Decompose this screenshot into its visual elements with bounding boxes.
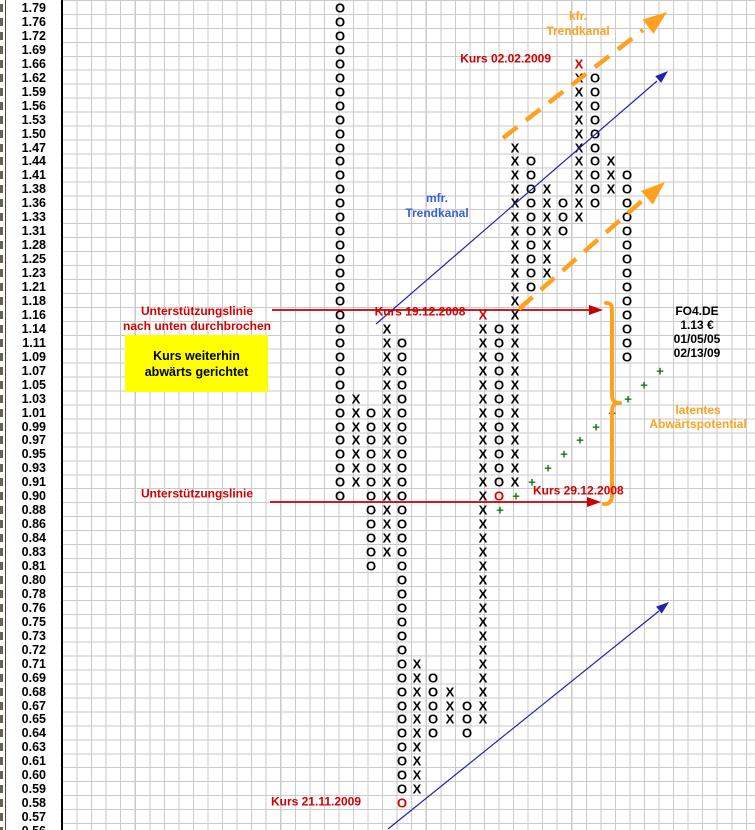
pf-o-marker: O (397, 476, 407, 489)
pf-o-marker: O (366, 434, 376, 447)
pf-x-marker: X (511, 225, 520, 238)
pf-o-marker: O (366, 420, 376, 433)
pf-o-marker: O (462, 699, 472, 712)
latent-plus-marker: + (512, 490, 520, 503)
pf-x-marker: X (383, 406, 392, 419)
pf-x-marker: X (511, 350, 520, 363)
pf-o-marker: O (558, 211, 568, 224)
pf-o-marker: O (590, 127, 600, 140)
pf-x-marker: X (511, 476, 520, 489)
pf-x-marker: X (543, 267, 552, 280)
pf-o-marker: O (397, 560, 407, 573)
pf-o-marker: O (335, 322, 345, 335)
pf-o-marker: O (335, 2, 345, 15)
pf-o-marker: O (526, 155, 536, 168)
annotation-kfr-trendkanal: kfr. Trendkanal (546, 9, 609, 39)
pf-o-marker: O (335, 308, 345, 321)
latent-plus-marker: + (544, 462, 552, 475)
pf-o-marker: O (335, 197, 345, 210)
pf-x-marker: X (607, 169, 616, 182)
pf-o-marker: O (590, 71, 600, 84)
pf-o-marker: O (494, 434, 504, 447)
pf-x-marker: X (479, 350, 488, 363)
pf-x-marker: X (479, 420, 488, 433)
pf-o-marker: O (526, 253, 536, 266)
pf-o-marker: O (494, 350, 504, 363)
pf-x-marker: X (413, 671, 422, 684)
pf-x-marker: X (383, 336, 392, 349)
pf-x-marker: X (413, 657, 422, 670)
pf-x-marker: X (413, 783, 422, 796)
pf-x-marker: X (479, 713, 488, 726)
pf-x-marker: X (511, 364, 520, 377)
pf-x-marker: X (479, 490, 488, 503)
pf-x-marker: X (479, 532, 488, 545)
pf-x-marker: X (383, 448, 392, 461)
support-broken-line1: Unterstützungslinie (123, 304, 271, 319)
pf-x-marker: X (575, 127, 584, 140)
pf-o-marker: O (397, 741, 407, 754)
annotation-mfr-trendkanal: mfr. Trendkanal (405, 191, 468, 221)
instrument-start-date: 01/05/05 (674, 332, 721, 346)
pf-o-marker: O (397, 462, 407, 475)
pf-x-marker: X (383, 462, 392, 475)
pf-o-marker: O (397, 769, 407, 782)
pf-o-marker: O (335, 420, 345, 433)
pf-o-marker: O (335, 71, 345, 84)
pf-o-marker: O (397, 336, 407, 349)
pf-o-marker: O (590, 155, 600, 168)
pf-x-marker: X (575, 85, 584, 98)
pf-o-marker: O (494, 490, 504, 503)
pf-x-marker: X (413, 741, 422, 754)
pf-x-marker: X (479, 364, 488, 377)
pf-o-marker: O (622, 308, 632, 321)
pf-o-marker: O (590, 113, 600, 126)
pf-x-marker: X (352, 392, 361, 405)
pf-x-marker: X (479, 587, 488, 600)
pf-o-marker: O (397, 755, 407, 768)
pf-o-marker: O (494, 462, 504, 475)
pf-o-marker: O (494, 420, 504, 433)
latent-plus-marker: + (496, 504, 504, 517)
pf-o-marker: O (335, 43, 345, 56)
pf-o-marker: O (335, 113, 345, 126)
pf-x-marker: X (479, 448, 488, 461)
latent-plus-marker: + (560, 448, 568, 461)
pf-o-marker: O (397, 671, 407, 684)
pf-x-marker: X (511, 420, 520, 433)
pf-x-marker: X (383, 420, 392, 433)
pf-x-marker: X (383, 504, 392, 517)
pf-x-marker: X (479, 546, 488, 559)
pf-o-marker: O (397, 601, 407, 614)
annotation-kurs-19-12-2008: Kurs 19.12.2008 (375, 305, 466, 320)
pf-x-marker: X (352, 420, 361, 433)
pf-x-marker: X (511, 308, 520, 321)
pf-o-marker: O (397, 685, 407, 698)
pf-o-marker: O (335, 155, 345, 168)
pf-x-marker: X (479, 434, 488, 447)
note-box: Kurs weiterhin abwärts gerichtet (125, 335, 268, 392)
pf-o-marker: O (335, 462, 345, 475)
pf-o-marker: O (590, 85, 600, 98)
mfr-trendkanal-line1: mfr. (405, 191, 468, 206)
latent-line1: latentes (649, 403, 746, 417)
pf-x-marker: X (479, 476, 488, 489)
pf-x-marker: X (413, 755, 422, 768)
pf-o-marker: O (590, 141, 600, 154)
pf-o-marker: O (622, 281, 632, 294)
pf-x-marker: X (383, 518, 392, 531)
pf-x-marker: X (511, 462, 520, 475)
pf-o-marker: O (397, 532, 407, 545)
pf-o-marker: O (335, 378, 345, 391)
pf-o-marker: O (366, 546, 376, 559)
support-broken-line2: nach unten durchbrochen (123, 319, 271, 334)
pf-o-marker: O (622, 183, 632, 196)
pf-o-marker: O (558, 197, 568, 210)
pf-x-marker: X (479, 308, 488, 321)
pf-x-marker: X (352, 448, 361, 461)
pf-o-marker: O (526, 169, 536, 182)
pf-x-marker: X (352, 476, 361, 489)
pf-o-marker: O (397, 615, 407, 628)
pf-x-marker: X (511, 197, 520, 210)
pf-o-marker: O (462, 727, 472, 740)
latent-plus-marker: + (640, 378, 648, 391)
pf-x-marker: X (413, 699, 422, 712)
pf-x-marker: X (479, 657, 488, 670)
pf-o-marker: O (494, 336, 504, 349)
pf-x-marker: X (575, 71, 584, 84)
pf-x-marker: X (383, 392, 392, 405)
kfr-trendkanal-line1: kfr. (546, 9, 609, 24)
pf-o-marker: O (366, 560, 376, 573)
pf-o-marker: O (428, 727, 438, 740)
pf-o-marker: O (335, 267, 345, 280)
pf-x-marker: X (575, 155, 584, 168)
latent-plus-marker: + (624, 392, 632, 405)
annotation-support-line: Unterstützungslinie (141, 487, 253, 502)
pf-o-marker: O (428, 699, 438, 712)
annotation-kurs-29-12-2008: Kurs 29.12.2008 (533, 484, 624, 499)
pf-x-marker: X (413, 769, 422, 782)
latent-plus-marker: + (656, 364, 664, 377)
pf-o-marker: O (558, 225, 568, 238)
pf-o-marker: O (590, 169, 600, 182)
pf-o-marker: O (397, 392, 407, 405)
pf-x-marker: X (479, 671, 488, 684)
pf-x-marker: X (511, 253, 520, 266)
pf-o-marker: O (397, 406, 407, 419)
pf-o-marker: O (397, 378, 407, 391)
pf-x-marker: X (383, 476, 392, 489)
pf-o-marker: O (590, 183, 600, 196)
pf-x-marker: X (543, 183, 552, 196)
pf-x-marker: X (607, 155, 616, 168)
pf-x-marker: X (383, 490, 392, 503)
latent-line2: Abwärtspotential (649, 417, 746, 431)
pf-o-marker: O (622, 294, 632, 307)
pf-x-marker: X (446, 685, 455, 698)
pf-o-marker: O (335, 29, 345, 42)
pf-x-marker: X (352, 462, 361, 475)
pf-x-marker: X (446, 699, 455, 712)
pf-x-marker: X (575, 141, 584, 154)
pf-o-marker: O (335, 281, 345, 294)
pf-o-marker: O (494, 448, 504, 461)
pf-o-marker: O (397, 546, 407, 559)
pf-x-marker: X (383, 322, 392, 335)
pf-o-marker: O (335, 15, 345, 28)
pf-x-marker: X (511, 267, 520, 280)
pf-x-marker: X (607, 183, 616, 196)
kfr-trendkanal-line2: Trendkanal (546, 24, 609, 39)
pf-x-marker: X (511, 211, 520, 224)
pf-o-marker: O (335, 392, 345, 405)
pf-symbols-layer: OOOOOOOOOOOOOOOOOOOOOOOOOOOOOOOOOOOOXXXX… (0, 0, 755, 830)
pf-o-marker: O (397, 573, 407, 586)
pf-o-marker: O (622, 322, 632, 335)
pf-o-marker: O (397, 713, 407, 726)
pf-x-marker: X (383, 364, 392, 377)
instrument-symbol: FO4.DE (674, 304, 721, 318)
pf-o-marker: O (397, 434, 407, 447)
pf-o-marker: O (335, 169, 345, 182)
pf-x-marker: X (479, 462, 488, 475)
pf-o-marker: O (622, 336, 632, 349)
pf-x-marker: X (511, 434, 520, 447)
pf-x-marker: X (575, 183, 584, 196)
pf-o-marker: O (366, 518, 376, 531)
pf-x-marker: X (511, 281, 520, 294)
pf-o-marker: O (526, 225, 536, 238)
pf-o-marker: O (397, 657, 407, 670)
pf-x-marker: X (413, 727, 422, 740)
pf-o-marker: O (397, 518, 407, 531)
pf-o-marker: O (397, 587, 407, 600)
pf-o-marker: O (397, 797, 407, 810)
annotation-latent-downside: latentes Abwärtspotential (649, 403, 746, 431)
pf-x-marker: X (479, 643, 488, 656)
pf-o-marker: O (366, 490, 376, 503)
pf-o-marker: O (397, 629, 407, 642)
pf-x-marker: X (511, 169, 520, 182)
pf-o-marker: O (335, 364, 345, 377)
pf-x-marker: X (383, 532, 392, 545)
pf-o-marker: O (462, 713, 472, 726)
pf-o-marker: O (335, 434, 345, 447)
pf-x-marker: X (511, 448, 520, 461)
pf-x-marker: X (383, 378, 392, 391)
pf-o-marker: O (335, 476, 345, 489)
pf-o-marker: O (428, 713, 438, 726)
latent-plus-marker: + (592, 420, 600, 433)
pf-o-marker: O (366, 476, 376, 489)
pf-x-marker: X (543, 225, 552, 238)
pf-x-marker: X (543, 253, 552, 266)
pf-x-marker: X (575, 197, 584, 210)
pf-o-marker: O (590, 197, 600, 210)
pf-o-marker: O (366, 462, 376, 475)
pf-x-marker: X (511, 322, 520, 335)
pf-x-marker: X (479, 336, 488, 349)
pf-x-marker: X (383, 546, 392, 559)
instrument-quote-box: FO4.DE 1.13 € 01/05/05 02/13/09 (674, 304, 721, 360)
pf-x-marker: X (383, 434, 392, 447)
pf-o-marker: O (397, 783, 407, 796)
pf-x-marker: X (479, 378, 488, 391)
pf-o-marker: O (397, 350, 407, 363)
latent-plus-marker: + (608, 406, 616, 419)
pf-x-marker: X (479, 699, 488, 712)
pf-o-marker: O (526, 281, 536, 294)
pf-o-marker: O (366, 406, 376, 419)
pf-o-marker: O (590, 99, 600, 112)
pf-x-marker: X (511, 336, 520, 349)
pf-x-marker: X (543, 211, 552, 224)
pf-x-marker: X (575, 211, 584, 224)
pf-o-marker: O (335, 141, 345, 154)
pf-o-marker: O (335, 448, 345, 461)
pf-x-marker: X (511, 378, 520, 391)
pf-x-marker: X (575, 113, 584, 126)
pf-x-marker: X (383, 350, 392, 363)
pf-o-marker: O (366, 532, 376, 545)
annotation-support-broken: Unterstützungslinie nach unten durchbroc… (123, 304, 271, 334)
pf-o-marker: O (622, 169, 632, 182)
pf-o-marker: O (366, 448, 376, 461)
pf-o-marker: O (397, 448, 407, 461)
annotation-kurs-21-11-2009: Kurs 21.11.2009 (271, 795, 361, 810)
pf-o-marker: O (335, 294, 345, 307)
instrument-end-date: 02/13/09 (674, 346, 721, 360)
pf-x-marker: X (575, 99, 584, 112)
pf-o-marker: O (397, 727, 407, 740)
pf-x-marker: X (543, 197, 552, 210)
pf-x-marker: X (413, 685, 422, 698)
pf-o-marker: O (335, 183, 345, 196)
pf-o-marker: O (526, 211, 536, 224)
pf-o-marker: O (494, 392, 504, 405)
pf-x-marker: X (413, 713, 422, 726)
pf-x-marker: X (511, 155, 520, 168)
pf-x-marker: X (352, 434, 361, 447)
pf-x-marker: X (446, 713, 455, 726)
pf-o-marker: O (335, 253, 345, 266)
latent-plus-marker: + (576, 434, 584, 447)
pf-o-marker: O (397, 504, 407, 517)
pf-x-marker: X (575, 57, 584, 70)
pf-o-marker: O (335, 99, 345, 112)
pf-o-marker: O (526, 183, 536, 196)
pf-x-marker: X (511, 141, 520, 154)
pf-o-marker: O (622, 253, 632, 266)
pf-o-marker: O (335, 211, 345, 224)
pf-x-marker: X (479, 560, 488, 573)
pf-o-marker: O (397, 490, 407, 503)
pf-o-marker: O (494, 322, 504, 335)
pf-x-marker: X (479, 685, 488, 698)
pf-x-marker: X (479, 615, 488, 628)
pf-o-marker: O (335, 336, 345, 349)
pf-x-marker: X (511, 183, 520, 196)
pf-o-marker: O (335, 490, 345, 503)
pf-o-marker: O (335, 350, 345, 363)
pf-o-marker: O (366, 504, 376, 517)
pf-o-marker: O (335, 85, 345, 98)
pf-x-marker: X (352, 406, 361, 419)
pf-o-marker: O (397, 420, 407, 433)
pf-o-marker: O (335, 406, 345, 419)
mfr-trendkanal-line2: Trendkanal (405, 206, 468, 221)
pf-o-marker: O (526, 267, 536, 280)
pf-o-marker: O (494, 406, 504, 419)
pf-x-marker: X (479, 504, 488, 517)
pf-o-marker: O (494, 364, 504, 377)
pf-x-marker: X (479, 406, 488, 419)
pf-chart-screenshot: 1.791.761.721.691.661.621.591.561.531.50… (0, 0, 755, 830)
pf-o-marker: O (335, 225, 345, 238)
pf-x-marker: X (479, 518, 488, 531)
pf-o-marker: O (622, 350, 632, 363)
pf-o-marker: O (622, 267, 632, 280)
pf-o-marker: O (397, 364, 407, 377)
pf-o-marker: O (397, 643, 407, 656)
pf-o-marker: O (622, 197, 632, 210)
note-box-line1: Kurs weiterhin (125, 348, 268, 364)
pf-x-marker: X (479, 629, 488, 642)
pf-o-marker: O (622, 239, 632, 252)
annotation-kurs-02-02-2009: Kurs 02.02.2009 (460, 52, 551, 67)
pf-x-marker: X (511, 392, 520, 405)
pf-o-marker: O (428, 685, 438, 698)
pf-x-marker: X (479, 322, 488, 335)
pf-o-marker: O (526, 239, 536, 252)
pf-o-marker: O (335, 57, 345, 70)
pf-x-marker: X (511, 294, 520, 307)
pf-x-marker: X (543, 239, 552, 252)
note-box-line2: abwärts gerichtet (125, 364, 268, 380)
pf-x-marker: X (511, 406, 520, 419)
pf-o-marker: O (335, 127, 345, 140)
pf-x-marker: X (575, 169, 584, 182)
pf-o-marker: O (397, 699, 407, 712)
pf-o-marker: O (622, 211, 632, 224)
pf-o-marker: O (494, 476, 504, 489)
pf-o-marker: O (622, 225, 632, 238)
instrument-last-price: 1.13 € (674, 318, 721, 332)
pf-x-marker: X (479, 573, 488, 586)
pf-x-marker: X (479, 601, 488, 614)
pf-o-marker: O (494, 378, 504, 391)
pf-x-marker: X (479, 392, 488, 405)
pf-o-marker: O (526, 197, 536, 210)
pf-x-marker: X (511, 239, 520, 252)
pf-o-marker: O (335, 239, 345, 252)
pf-o-marker: O (428, 671, 438, 684)
